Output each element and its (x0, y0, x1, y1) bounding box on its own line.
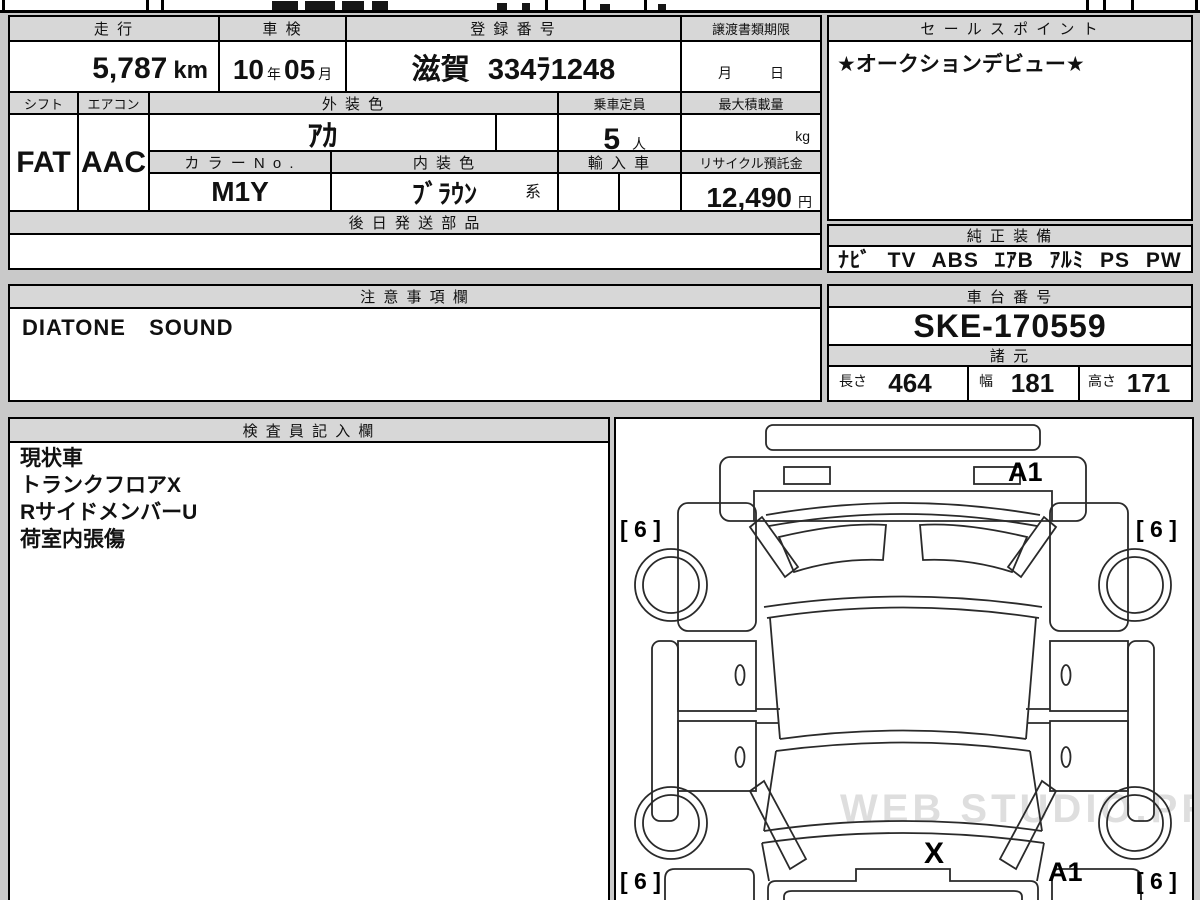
exterior-color-value: ｱｶ (148, 113, 497, 152)
mileage-value: 5,787 (92, 52, 167, 86)
interior-color-suffix: 系 (525, 178, 541, 202)
import-empty-cell-2 (618, 172, 682, 212)
color-no-value: M1Y (148, 172, 332, 212)
registration-header: 登 録 番 号 (345, 15, 682, 42)
cutoff-text-fragment (342, 1, 364, 10)
cutoff-text-fragment (600, 4, 610, 10)
spec-length-label: 長さ (839, 371, 867, 391)
damage-mark-hood-x: X (924, 837, 944, 870)
inspection-year: 10 (233, 54, 264, 86)
inspection-month: 05 (284, 54, 315, 86)
inspector-header: 検 査 員 記 入 欄 (8, 417, 610, 443)
maxload-header: 最大積載量 (680, 91, 822, 115)
tire-depth-top-left: [ 6 ] (620, 516, 661, 542)
inspector-note-line: トランクフロアX (20, 472, 181, 499)
inspector-notes: 現状車 トランクフロアX RサイドメンバーU 荷室内張傷 (8, 441, 610, 900)
windshield-hood (762, 751, 1044, 881)
mileage-value-cell: 5,787 km (8, 40, 220, 93)
inspection-value-cell: 10 年 05 月 (218, 40, 347, 93)
cutoff-text-fragment (522, 3, 530, 10)
cutoff-cell-border (2, 0, 5, 10)
cutoff-cell-border (644, 0, 647, 10)
recycle-header: リサイクル預託金 (680, 150, 822, 174)
auction-sheet: 走 行 車 検 登 録 番 号 譲渡書類期限 5,787 km 10 年 05 … (0, 0, 1200, 900)
inspection-header: 車 検 (218, 15, 347, 42)
deadline-value-cell: 月 日 (680, 40, 822, 93)
aircon-value: AAC (77, 113, 150, 212)
cutoff-text-fragment (658, 4, 666, 10)
wheels (635, 549, 1171, 859)
recycle-unit: 円 (798, 192, 812, 212)
cautions-content: DIATONE SOUND (8, 307, 822, 402)
cutoff-cell-border (1103, 0, 1106, 10)
cutoff-text-fragment (372, 1, 388, 10)
tire-depth-bottom-right: [ 6 ] (1136, 868, 1177, 894)
maxload-unit: kg (795, 128, 810, 144)
deadline-day-label: 日 (770, 63, 784, 83)
cutoff-cell-border (1086, 0, 1089, 10)
inspector-note-line: 荷室内張傷 (20, 526, 125, 553)
spec-width-label: 幅 (979, 371, 993, 391)
deadline-month-label: 月 (718, 63, 732, 83)
spec-width-value: 181 (1011, 368, 1054, 399)
color-no-header: カ ラ ー N o . (148, 150, 332, 174)
shift-header: シフト (8, 91, 79, 115)
import-empty-cell-1 (557, 172, 620, 212)
aircon-header: エアコン (77, 91, 150, 115)
exterior-color-header: 外 装 色 (148, 91, 559, 115)
later-parts-header: 後 日 発 送 部 品 (8, 210, 822, 235)
chassis-header: 車 台 番 号 (827, 284, 1193, 308)
mileage-unit: km (173, 57, 208, 85)
recycle-value-cell: 12,490 円 (680, 172, 822, 212)
interior-color-header: 内 装 色 (330, 150, 559, 174)
cutoff-cell-border (161, 0, 164, 10)
capacity-value-cell: 5 人 (557, 113, 682, 152)
damage-mark-front-a1: A1 (1048, 857, 1083, 887)
cutoff-cell-border (146, 0, 149, 10)
inspector-note-line: 現状車 (20, 445, 83, 472)
exterior-color-empty-cell (495, 113, 559, 152)
inspector-note-line: RサイドメンバーU (20, 499, 197, 526)
mileage-header: 走 行 (8, 15, 220, 42)
cutoff-cell-border (545, 0, 548, 10)
cutoff-text-fragment (497, 3, 507, 10)
cutoff-text-fragment (305, 1, 335, 10)
interior-color-cell: ﾌﾞﾗｳﾝ 系 (330, 172, 559, 212)
cutoff-text-fragment (272, 1, 298, 10)
interior-color-value: ﾌﾞﾗｳﾝ (412, 174, 477, 211)
tire-depth-top-right: [ 6 ] (1136, 516, 1177, 542)
spec-length-cell: 長さ 464 (827, 365, 969, 402)
damage-mark-rear-a1: A1 (1008, 457, 1043, 487)
spec-height-label: 高さ (1088, 371, 1116, 391)
cutoff-cell-border (1195, 0, 1198, 10)
spec-height-cell: 高さ 171 (1078, 365, 1193, 402)
roof (764, 597, 1042, 752)
inspection-month-suffix: 月 (318, 64, 332, 84)
shift-value: FAT (8, 113, 79, 212)
spec-length-value: 464 (888, 368, 931, 399)
tire-depth-bottom-left: [ 6 ] (620, 868, 661, 894)
maxload-value-cell: kg (680, 113, 822, 152)
car-diagram: A1 [ 6 ] [ 6 ] [ 6 ] [ 6 ] X A1 (616, 419, 1192, 900)
capacity-header: 乗車定員 (557, 91, 682, 115)
cutoff-row-remnant (0, 0, 1200, 13)
registration-value: 滋賀 334ﾗ1248 (345, 40, 682, 93)
spec-height-value: 171 (1127, 368, 1170, 399)
rear-bumper (766, 425, 1040, 450)
specs-header: 諸 元 (827, 344, 1193, 367)
deadline-header: 譲渡書類期限 (680, 15, 822, 42)
cutoff-cell-border (583, 0, 586, 10)
damage-diagram-box: WEB STUDIO.PRO (614, 417, 1194, 900)
sales-point-content: ★オークションデビュー★ (827, 40, 1193, 221)
rear-window (766, 503, 1040, 572)
spec-width-cell: 幅 181 (967, 365, 1080, 402)
equipment-list: ﾅﾋﾞ TV ABS ｴｱB ｱﾙﾐ PS PW (827, 245, 1193, 273)
import-header: 輸 入 車 (557, 150, 682, 174)
later-parts-content (8, 233, 822, 270)
chassis-value: SKE-170559 (827, 306, 1193, 346)
cautions-header: 注 意 事 項 欄 (8, 284, 822, 309)
cutoff-cell-border (1131, 0, 1134, 10)
inspection-year-suffix: 年 (267, 64, 281, 84)
sales-point-header: セ ー ル ス ポ イ ン ト (827, 15, 1193, 42)
